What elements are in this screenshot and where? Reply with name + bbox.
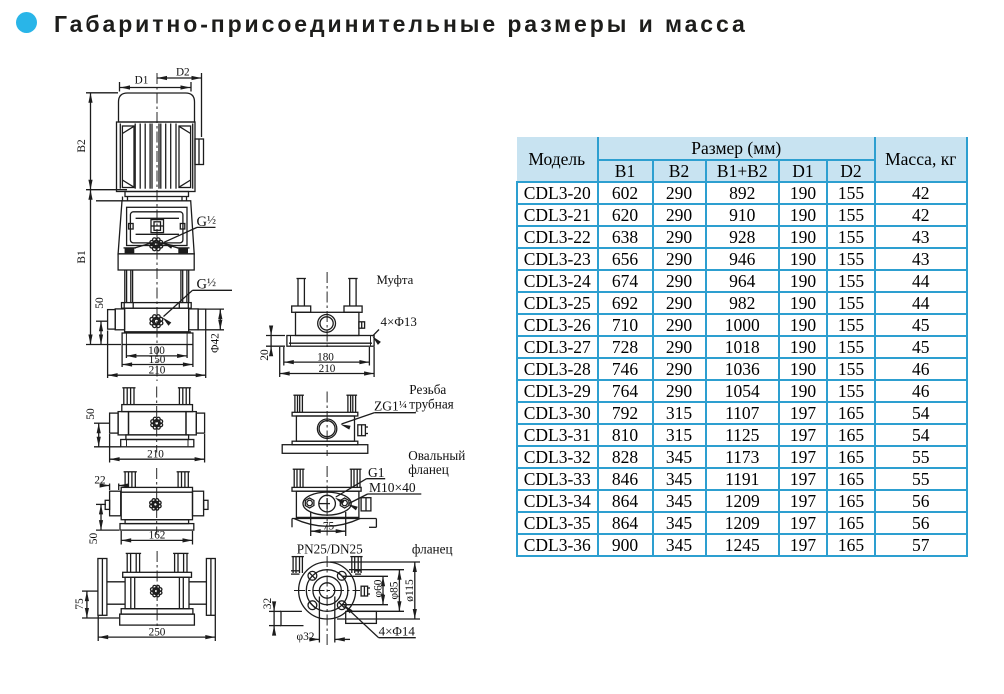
svg-text:ZG1¼: ZG1¼ <box>374 399 407 414</box>
svg-text:210: 210 <box>319 363 336 375</box>
svg-text:4×Φ14: 4×Φ14 <box>379 624 416 639</box>
svg-text:32: 32 <box>262 598 274 610</box>
svg-text:162: 162 <box>149 530 166 542</box>
svg-text:75: 75 <box>323 521 335 533</box>
svg-text:G1: G1 <box>368 465 385 480</box>
svg-text:фланец: фланец <box>408 462 449 477</box>
svg-text:75: 75 <box>74 598 86 610</box>
svg-text:210: 210 <box>149 365 166 377</box>
svg-text:фланец: фланец <box>412 542 453 557</box>
svg-text:трубная: трубная <box>409 396 453 411</box>
svg-text:22: 22 <box>94 474 105 486</box>
svg-text:Φ42: Φ42 <box>210 333 222 353</box>
svg-text:50: 50 <box>85 408 97 420</box>
svg-text:B1: B1 <box>76 250 88 264</box>
svg-text:М10×40: М10×40 <box>369 480 416 495</box>
svg-text:φ32: φ32 <box>297 631 315 643</box>
svg-text:φ85: φ85 <box>389 581 401 599</box>
svg-text:D2: D2 <box>176 66 190 78</box>
svg-text:B2: B2 <box>76 139 88 153</box>
svg-text:50: 50 <box>88 533 100 545</box>
svg-text:50: 50 <box>94 297 106 309</box>
svg-text:20: 20 <box>259 349 271 361</box>
svg-text:D1: D1 <box>135 75 149 87</box>
svg-text:210: 210 <box>147 448 164 460</box>
svg-text:180: 180 <box>317 351 334 363</box>
svg-text:φ60: φ60 <box>373 579 385 597</box>
svg-text:ø115: ø115 <box>404 579 416 602</box>
svg-text:250: 250 <box>149 626 166 638</box>
svg-text:PN25/DN25: PN25/DN25 <box>297 542 363 557</box>
svg-text:Муфта: Муфта <box>377 273 414 287</box>
svg-text:Резьба: Резьба <box>409 382 446 397</box>
svg-text:Овальный: Овальный <box>408 448 465 463</box>
svg-text:4×Φ13: 4×Φ13 <box>381 314 417 329</box>
